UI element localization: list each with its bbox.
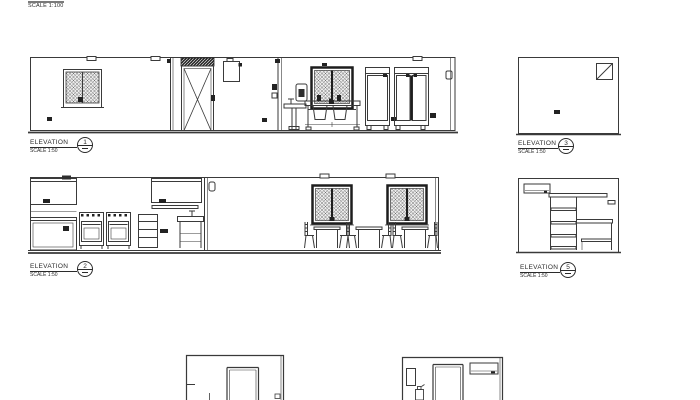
elevation-2-bubble: 2 <box>77 261 93 277</box>
drawer-unit <box>139 215 158 248</box>
vent <box>87 57 96 61</box>
elevation-3-drawing <box>516 58 621 135</box>
power-outlet <box>262 118 267 122</box>
kitchen-sink-bench <box>178 211 204 248</box>
corner-vent-panel <box>597 64 613 80</box>
bubble-divider <box>558 146 573 147</box>
wall-outline <box>519 179 619 253</box>
fridge-double <box>395 68 429 130</box>
overhead-cupboard-right <box>152 179 202 209</box>
elevation-1-drawing <box>28 57 458 133</box>
bubble-divider <box>560 270 575 271</box>
elevation-2-drawing <box>28 174 441 253</box>
range-cooker <box>80 213 104 250</box>
bubble-dash <box>82 272 88 273</box>
door-frame <box>227 368 259 400</box>
light-switch <box>446 71 452 79</box>
vent <box>151 57 160 61</box>
fitting <box>167 59 171 63</box>
overhead-cupboard-left <box>31 176 77 205</box>
elevation-1-bubble: 1 <box>77 137 93 153</box>
drawing-sheet: SCALE 1:100 ELEVATION SCALE 1:50 1 ELEVA… <box>0 0 700 400</box>
table-and-chairs <box>347 222 392 248</box>
elevation-scale: SCALE 1:50 <box>520 273 548 279</box>
wall-device <box>272 93 277 98</box>
counter-bench <box>577 220 613 251</box>
elevation-5-drawing <box>516 179 621 253</box>
bubble-dash <box>82 148 88 149</box>
bubble-dash <box>565 273 571 274</box>
hand-basin <box>284 99 306 131</box>
wall-outline <box>403 358 503 400</box>
door <box>181 58 215 131</box>
fridge-single <box>366 68 390 130</box>
elevation-scale: SCALE 1:50 <box>30 272 58 278</box>
wall-notch <box>608 201 615 205</box>
table-and-chairs <box>393 222 438 248</box>
elevation-linework <box>0 0 700 400</box>
partial-drawing-left <box>187 356 284 400</box>
soap-dispenser <box>296 84 307 101</box>
elevation-scale: SCALE 1:50 <box>30 148 58 154</box>
elevation-3-bubble: 3 <box>558 138 574 154</box>
plan-scale-note: SCALE 1:100 <box>28 3 64 9</box>
elevation-5-bubble: 5 <box>560 262 576 278</box>
vent <box>320 174 329 178</box>
elevation-1-label: ELEVATION SCALE 1:50 1 <box>30 139 68 146</box>
wall-device <box>272 84 277 90</box>
fitting <box>275 59 280 63</box>
base-cupboard-left <box>31 218 77 251</box>
elevation-title: ELEVATION <box>518 140 556 147</box>
elevation-scale: SCALE 1:50 <box>518 149 546 155</box>
power-outlet <box>47 117 52 121</box>
vent <box>386 174 395 178</box>
power-outlet <box>554 110 560 114</box>
power-outlet <box>160 229 168 233</box>
elevation-title: ELEVATION <box>30 263 68 270</box>
wall-outline <box>187 356 284 400</box>
vent <box>413 57 422 61</box>
window-crosshatch-dark <box>385 186 429 226</box>
elevation-title: ELEVATION <box>520 264 558 271</box>
wall-box <box>224 59 243 82</box>
bubble-divider <box>77 145 92 146</box>
elevation-5-label: ELEVATION SCALE 1:50 5 <box>520 264 558 271</box>
air-conditioner <box>524 184 550 193</box>
window-crosshatch-dark <box>310 186 354 226</box>
elevation-title: ELEVATION <box>30 139 68 146</box>
door-frame <box>433 365 463 400</box>
bubble-divider <box>77 269 92 270</box>
partial-drawing-right <box>403 358 503 400</box>
elevation-3-label: ELEVATION SCALE 1:50 3 <box>518 140 556 147</box>
wall-bracket <box>209 182 215 191</box>
wall-cabinet <box>407 369 416 386</box>
window-crosshatch-dark <box>308 63 356 110</box>
power-outlet <box>391 117 396 121</box>
air-conditioner <box>470 363 498 374</box>
wall-outline <box>519 58 619 134</box>
range-cooker <box>107 213 131 250</box>
power-outlet <box>430 113 436 118</box>
table-and-chairs <box>305 222 350 248</box>
window-crosshatch <box>61 70 104 108</box>
elevation-2-label: ELEVATION SCALE 1:50 2 <box>30 263 68 270</box>
fire-extinguisher <box>416 385 425 400</box>
bubble-dash <box>563 149 569 150</box>
